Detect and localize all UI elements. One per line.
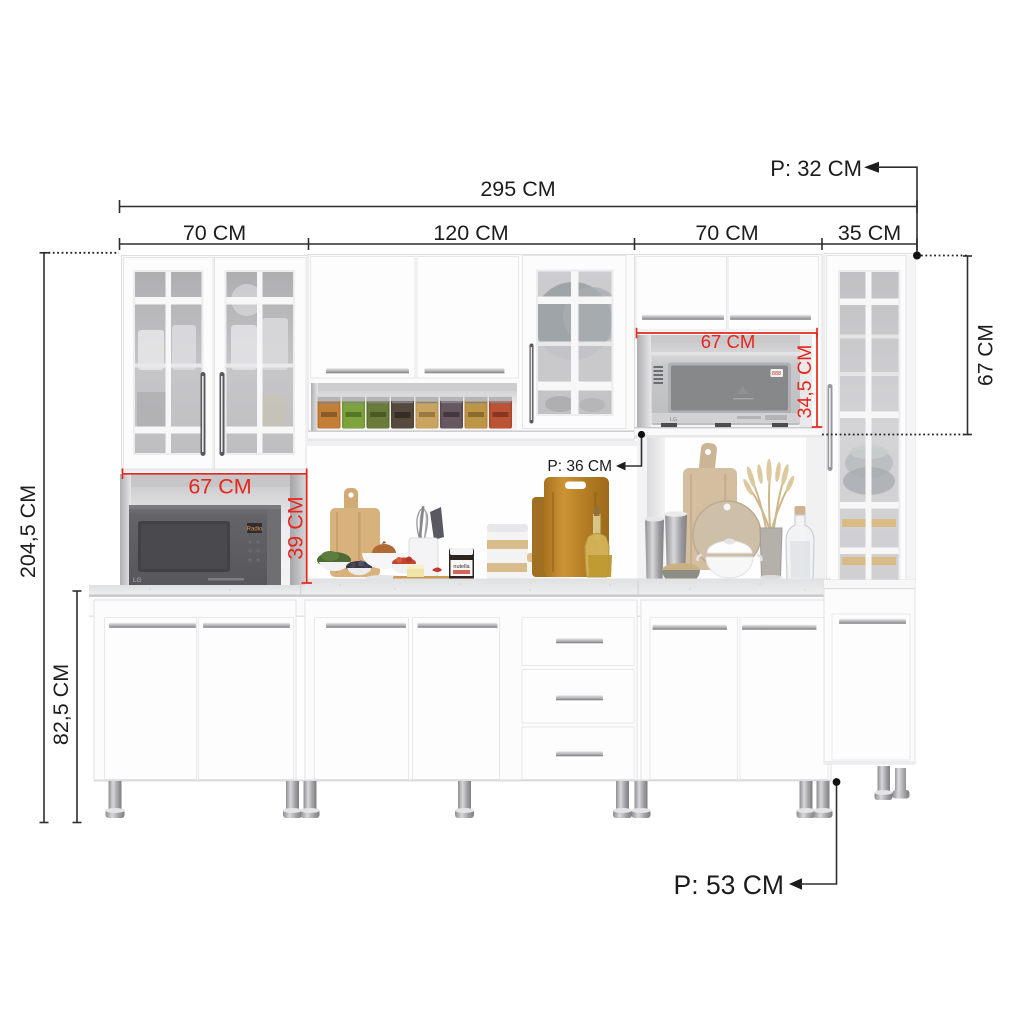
svg-text:Radio: Radio <box>247 527 263 533</box>
svg-text:P: 36 CM: P: 36 CM <box>547 458 612 475</box>
svg-text:70 CM: 70 CM <box>183 221 246 245</box>
svg-text:204,5 CM: 204,5 CM <box>16 485 40 578</box>
svg-text:67 CM: 67 CM <box>701 331 756 352</box>
svg-text:82,5 CM: 82,5 CM <box>49 664 73 745</box>
svg-text:LG: LG <box>670 417 677 423</box>
svg-text:888: 888 <box>772 371 781 377</box>
svg-text:295 CM: 295 CM <box>480 177 555 201</box>
svg-text:P: 53 CM: P: 53 CM <box>674 870 784 900</box>
svg-text:70 CM: 70 CM <box>695 221 758 245</box>
svg-text:LG: LG <box>133 577 142 584</box>
svg-text:39 CM: 39 CM <box>284 496 308 559</box>
svg-text:nutella: nutella <box>453 564 470 570</box>
svg-text:67 CM: 67 CM <box>188 475 251 499</box>
svg-text:P: 32 CM: P: 32 CM <box>770 156 862 181</box>
svg-text:34,5 CM: 34,5 CM <box>794 345 816 419</box>
svg-text:35 CM: 35 CM <box>838 221 901 245</box>
svg-text:120 CM: 120 CM <box>433 221 508 245</box>
svg-text:67 CM: 67 CM <box>975 324 998 386</box>
